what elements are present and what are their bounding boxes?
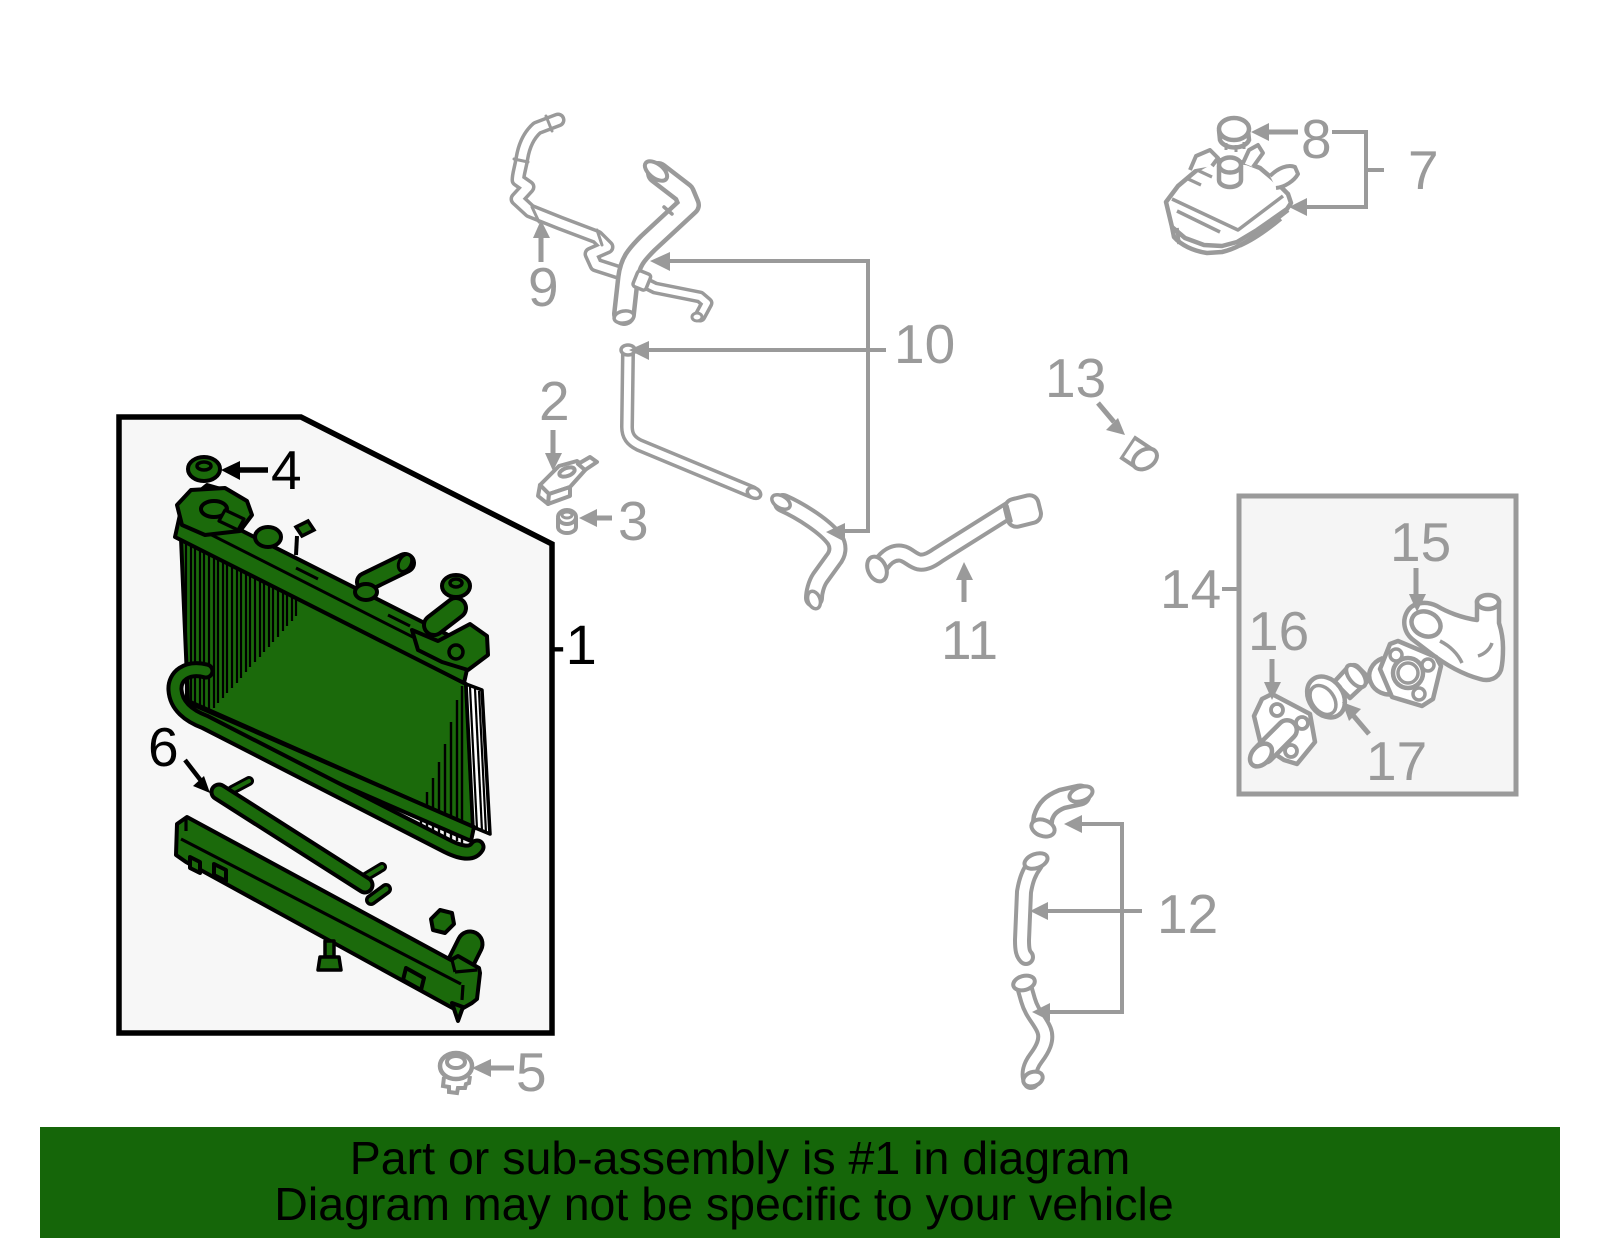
svg-text:Part or sub-assembly is #1 in: Part or sub-assembly is #1 in diagram — [350, 1132, 1131, 1184]
svg-text:Diagram may not be specific to: Diagram may not be specific to your vehi… — [274, 1178, 1173, 1230]
svg-text:10: 10 — [894, 313, 955, 375]
svg-text:6: 6 — [148, 716, 179, 778]
svg-text:8: 8 — [1301, 108, 1332, 170]
svg-text:17: 17 — [1366, 730, 1427, 792]
svg-text:9: 9 — [528, 256, 559, 318]
svg-text:5: 5 — [516, 1041, 547, 1103]
svg-text:3: 3 — [618, 490, 649, 552]
svg-text:12: 12 — [1157, 883, 1218, 945]
svg-text:14: 14 — [1160, 558, 1221, 620]
svg-text:13: 13 — [1045, 347, 1106, 409]
svg-text:16: 16 — [1248, 600, 1309, 662]
svg-text:7: 7 — [1408, 139, 1439, 201]
svg-text:15: 15 — [1390, 511, 1451, 573]
svg-text:-1: -1 — [547, 613, 597, 676]
svg-text:11: 11 — [941, 609, 998, 671]
svg-text:2: 2 — [539, 370, 570, 432]
svg-text:4: 4 — [271, 439, 302, 501]
